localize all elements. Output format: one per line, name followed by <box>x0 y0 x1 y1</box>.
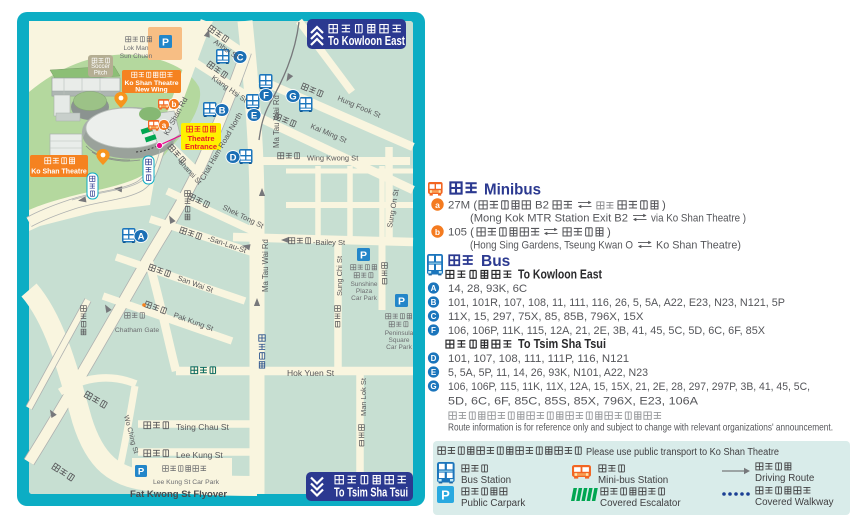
svg-text:b: b <box>435 227 440 237</box>
svg-text:Mini-bus Station: Mini-bus Station <box>598 475 668 486</box>
svg-text:B2: B2 <box>535 200 549 212</box>
svg-text:Hok Yuen St: Hok Yuen St <box>287 368 335 378</box>
svg-text:Soccer: Soccer <box>91 64 110 70</box>
svg-text:To Tsim Sha Tsui: To Tsim Sha Tsui <box>518 337 606 351</box>
svg-text:Ko Shan Theatre): Ko Shan Theatre) <box>656 240 741 252</box>
svg-text:P: P <box>138 467 145 478</box>
svg-text:via Ko Shan Theatre ): via Ko Shan Theatre ) <box>651 213 746 225</box>
svg-text:(Hong Sing Gardens, Tseung Kwa: (Hong Sing Gardens, Tseung Kwan O <box>470 240 633 252</box>
svg-text:Ma Tau Wai Rd: Ma Tau Wai Rd <box>261 239 270 292</box>
svg-text:11X, 15, 297, 75X, 85, 85B, 79: 11X, 15, 297, 75X, 85, 85B, 796X, 15X <box>448 311 644 323</box>
svg-text:Lok Man: Lok Man <box>124 45 149 52</box>
svg-text:Ma Tau Wai Rd: Ma Tau Wai Rd <box>272 95 281 148</box>
svg-text:Sunshine: Sunshine <box>350 281 377 288</box>
svg-text:F: F <box>263 90 269 101</box>
svg-text:Sung Chi St: Sung Chi St <box>335 255 344 296</box>
svg-text:Covered Escalator: Covered Escalator <box>600 498 681 509</box>
svg-text:Plaza: Plaza <box>356 288 373 295</box>
svg-text:Sun Chuen: Sun Chuen <box>120 53 153 60</box>
svg-text:(Mong Kok MTR Station Exit B2: (Mong Kok MTR Station Exit B2 <box>470 213 628 225</box>
svg-text:106, 106P, 115, 11K, 11X, 12A,: 106, 106P, 115, 11K, 11X, 12A, 15, 15X, … <box>448 381 810 393</box>
svg-text:Entrance: Entrance <box>185 142 217 151</box>
svg-text:101, 101R, 107, 108, 11, 111,: 101, 101R, 107, 108, 11, 111, 116, 26, 5… <box>448 297 785 309</box>
svg-text:A: A <box>138 231 145 242</box>
svg-text:P: P <box>360 250 367 262</box>
svg-text:Please use public transport to: Please use public transport to Ko Shan T… <box>586 447 780 458</box>
svg-text:A: A <box>431 284 437 293</box>
svg-text:P: P <box>162 37 169 49</box>
svg-text:D: D <box>230 152 237 163</box>
svg-text:Lee Kung St: Lee Kung St <box>176 450 223 460</box>
svg-text:Driving Route: Driving Route <box>755 473 815 484</box>
svg-text:27M (: 27M ( <box>448 200 477 212</box>
svg-text:Bus: Bus <box>481 253 510 270</box>
svg-text:Ko Shan Theatre: Ko Shan Theatre <box>31 169 87 176</box>
svg-text:101, 107, 108, 111, 111P, 116,: 101, 107, 108, 111, 111P, 116, N121 <box>448 353 629 365</box>
svg-text:To Kowloon East: To Kowloon East <box>328 34 406 48</box>
svg-text:G: G <box>289 91 296 102</box>
svg-text:Man Lok St: Man Lok St <box>359 377 368 416</box>
svg-text:E: E <box>251 110 257 121</box>
svg-text:Wing Kwong St: Wing Kwong St <box>307 154 359 163</box>
svg-text:106, 106P, 11K, 115, 12A, 21,: 106, 106P, 11K, 115, 12A, 21, 2E, 3B, 41… <box>448 325 765 337</box>
svg-text:Route information is for refer: Route information is for reference only … <box>448 422 833 434</box>
svg-text:Minibus: Minibus <box>484 182 541 199</box>
svg-text:105 (: 105 ( <box>448 227 474 239</box>
svg-text:Pitch: Pitch <box>94 71 107 77</box>
svg-text:Bus Station: Bus Station <box>461 475 511 486</box>
svg-text:Fat Kwong St Flyover: Fat Kwong St Flyover <box>130 489 227 500</box>
svg-text:Car Park: Car Park <box>351 295 377 302</box>
svg-text:a: a <box>435 200 440 210</box>
svg-text:5, 5A, 5P, 11, 14, 26, 93K, N1: 5, 5A, 5P, 11, 14, 26, 93K, N101, A22, N… <box>448 367 648 379</box>
svg-text:To Kowloon East: To Kowloon East <box>518 267 603 281</box>
svg-text:B: B <box>431 298 437 307</box>
svg-text:To Tsim Sha Tsui: To Tsim Sha Tsui <box>334 486 408 500</box>
svg-text:E: E <box>431 368 437 377</box>
svg-text:Car Park: Car Park <box>386 344 412 351</box>
svg-text:G: G <box>430 382 436 391</box>
svg-text:F: F <box>431 326 436 335</box>
svg-text:Lee Kung St Car Park: Lee Kung St Car Park <box>153 479 220 486</box>
svg-text:Peninsula: Peninsula <box>385 330 414 337</box>
svg-text:Tsing Chau St: Tsing Chau St <box>176 422 230 432</box>
svg-text:Square: Square <box>389 337 410 344</box>
svg-text:Chatham Gate: Chatham Gate <box>115 327 159 334</box>
svg-text:): ) <box>662 200 666 212</box>
svg-text:14, 28, 93K, 6C: 14, 28, 93K, 6C <box>448 283 527 295</box>
svg-text:New Wing: New Wing <box>135 87 167 94</box>
svg-text:Covered Walkway: Covered Walkway <box>755 497 834 508</box>
svg-text:-Bailey St: -Bailey St <box>313 238 346 247</box>
svg-text:P: P <box>441 488 450 503</box>
svg-text:P: P <box>398 296 405 308</box>
svg-text:D: D <box>431 354 437 363</box>
svg-text:5D, 6C, 6F, 85C, 85S, 85X, 796: 5D, 6C, 6F, 85C, 85S, 85X, 796X, E23, 10… <box>448 396 698 408</box>
svg-text:C: C <box>431 312 437 321</box>
svg-text:Public Carpark: Public Carpark <box>461 498 525 509</box>
svg-text:): ) <box>607 227 611 239</box>
svg-text:B: B <box>219 105 226 116</box>
